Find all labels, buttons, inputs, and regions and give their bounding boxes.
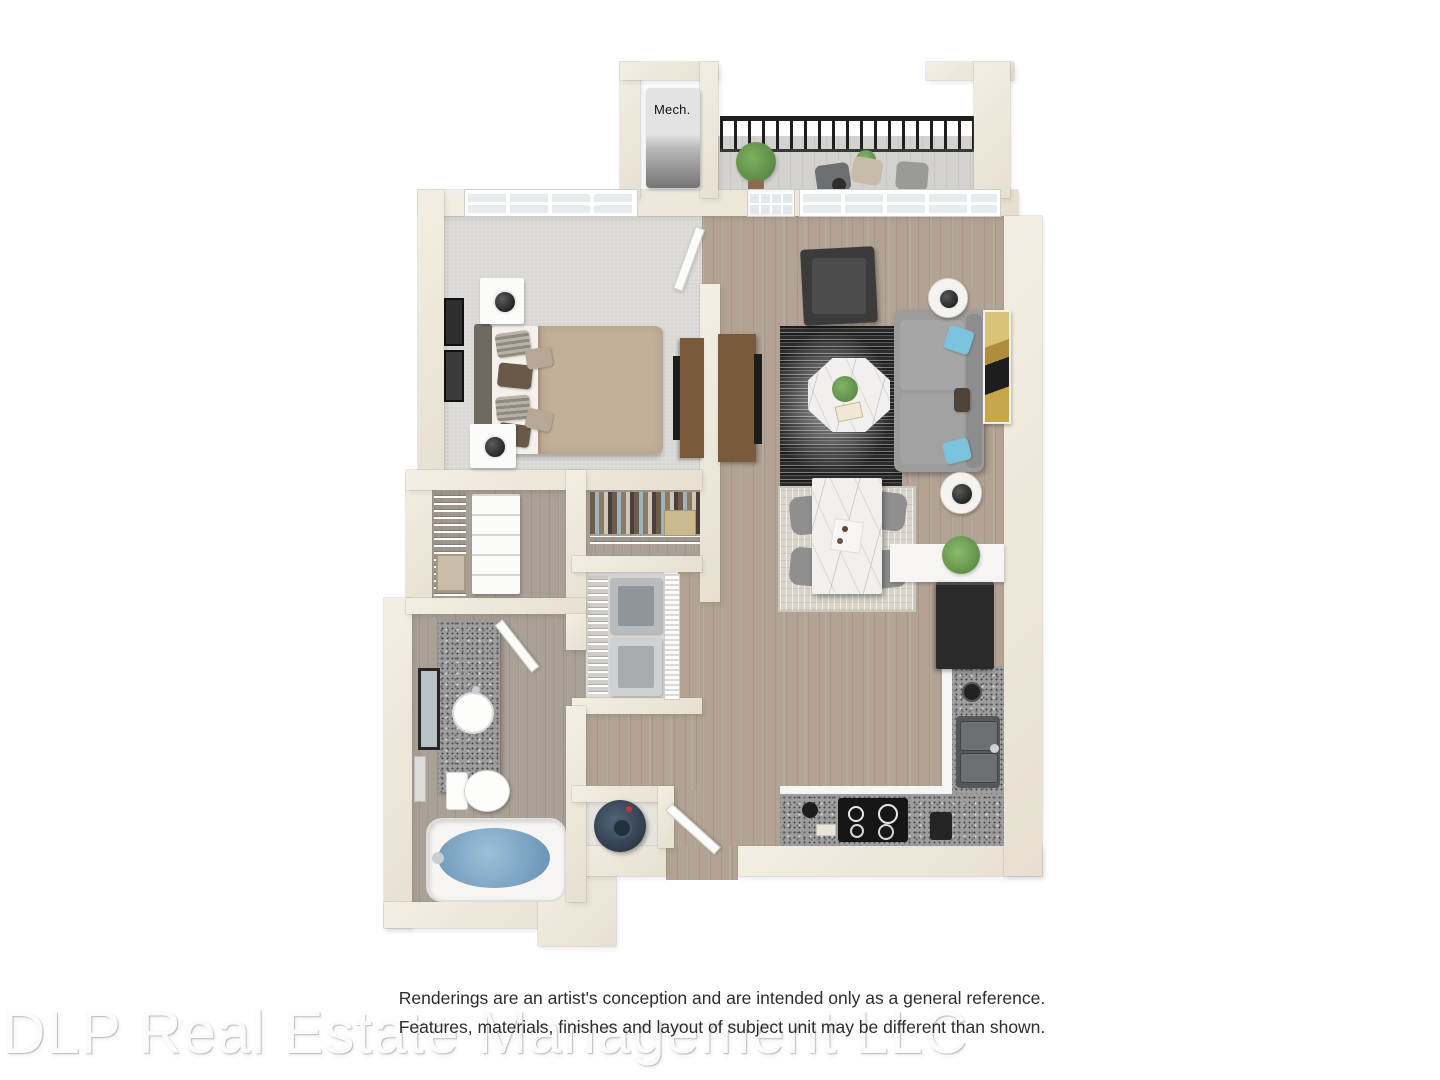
wall-bottom-kitchen (738, 846, 1042, 876)
cooktop-burner (878, 824, 894, 840)
wall-laundry-bottom (572, 698, 702, 714)
coat-closet-wire-shelf (590, 536, 700, 544)
bedroom-dresser (680, 338, 704, 458)
mech-closet-label: Mech. (654, 102, 690, 117)
bathroom-mirror (418, 668, 440, 750)
wall-coat-laundry-divider (572, 556, 702, 572)
cooktop-burner (850, 824, 864, 838)
cooktop-burner (848, 806, 864, 822)
wall-mech-left (620, 62, 640, 198)
bathtub-water (438, 828, 550, 888)
vanity-sink (452, 692, 494, 734)
water-heater-cap (612, 818, 632, 838)
living-wall-art (983, 310, 1011, 424)
hall-filler-floor (702, 602, 720, 846)
vanity-faucet (472, 686, 480, 694)
side-table-lamp (950, 482, 974, 506)
sink-basin (960, 753, 998, 783)
apartment-floorplan: Mech. (370, 58, 1062, 960)
water-heater-valve (626, 806, 632, 812)
disclaimer-line-1: Renderings are an artist's conception an… (342, 984, 1102, 1013)
walkin-closet-dresser (472, 494, 520, 594)
bedroom-wall-art-2 (444, 350, 464, 402)
sink-faucet (990, 744, 999, 753)
wall-balcony-right (974, 62, 1010, 198)
wall-bath-right-lower (566, 706, 586, 902)
balcony-plant-pot (748, 180, 764, 190)
living-windows (800, 190, 1000, 216)
wall-closet-bottom (406, 598, 586, 614)
cooktop (838, 798, 908, 842)
wall-left-bath (384, 598, 412, 928)
wall-bath-right-upper (566, 614, 586, 650)
vestibule-floor (586, 714, 720, 790)
cutting-board (816, 824, 836, 836)
balcony-chair-beige (850, 156, 884, 187)
toilet-bowl (464, 770, 510, 812)
living-tv (754, 354, 762, 444)
bed-duvet (538, 326, 663, 454)
living-media-console (718, 334, 756, 462)
wall-left-bedroom (418, 190, 444, 482)
entry-threshold-floor (666, 846, 738, 880)
side-table-lamp (938, 288, 960, 310)
balcony-plant-large (736, 142, 776, 182)
wall-bedroom-bottom (406, 470, 702, 490)
refrigerator (936, 582, 994, 669)
wall-closet-right (566, 470, 586, 614)
nightstand-lamp (493, 290, 517, 314)
bedroom-doorway-floor (702, 216, 720, 284)
dining-table-bowl (842, 526, 848, 532)
wall-mech-balcony-divider (700, 62, 718, 198)
balcony-french-door (748, 190, 794, 216)
walkin-closet-basket (436, 554, 466, 592)
laundry-louvered-doors (664, 574, 680, 700)
wall-left-closet (406, 474, 432, 604)
nightstand-lamp (483, 435, 507, 459)
coffee-maker (930, 812, 952, 840)
bedroom-tv (673, 356, 680, 440)
cooktop-burner (878, 804, 898, 824)
bathtub-faucet (432, 852, 444, 864)
coat-closet-box (664, 510, 696, 536)
disclaimer: Renderings are an artist's conception an… (342, 984, 1102, 1041)
balcony-chair-gray (895, 161, 929, 191)
counter-decor (962, 682, 982, 702)
sofa-pillow-brown (954, 388, 970, 412)
dryer-door (618, 646, 654, 688)
dining-table-tray (830, 518, 864, 554)
bedroom-wall-art-1 (444, 298, 464, 346)
kitchen-plant (942, 536, 980, 574)
towel-bar (414, 756, 426, 802)
accent-chair-seat (812, 258, 866, 314)
floorplan-rendering: Mech. (0, 0, 1440, 1080)
kettle (802, 802, 818, 818)
disclaimer-line-2: Features, materials, finishes and layout… (342, 1013, 1102, 1042)
laundry-wire-shelf (588, 576, 608, 694)
washer-lid (618, 586, 654, 626)
bedroom-window (465, 190, 637, 216)
coffee-table-plant (832, 376, 858, 402)
dining-table-bowl (837, 538, 843, 544)
